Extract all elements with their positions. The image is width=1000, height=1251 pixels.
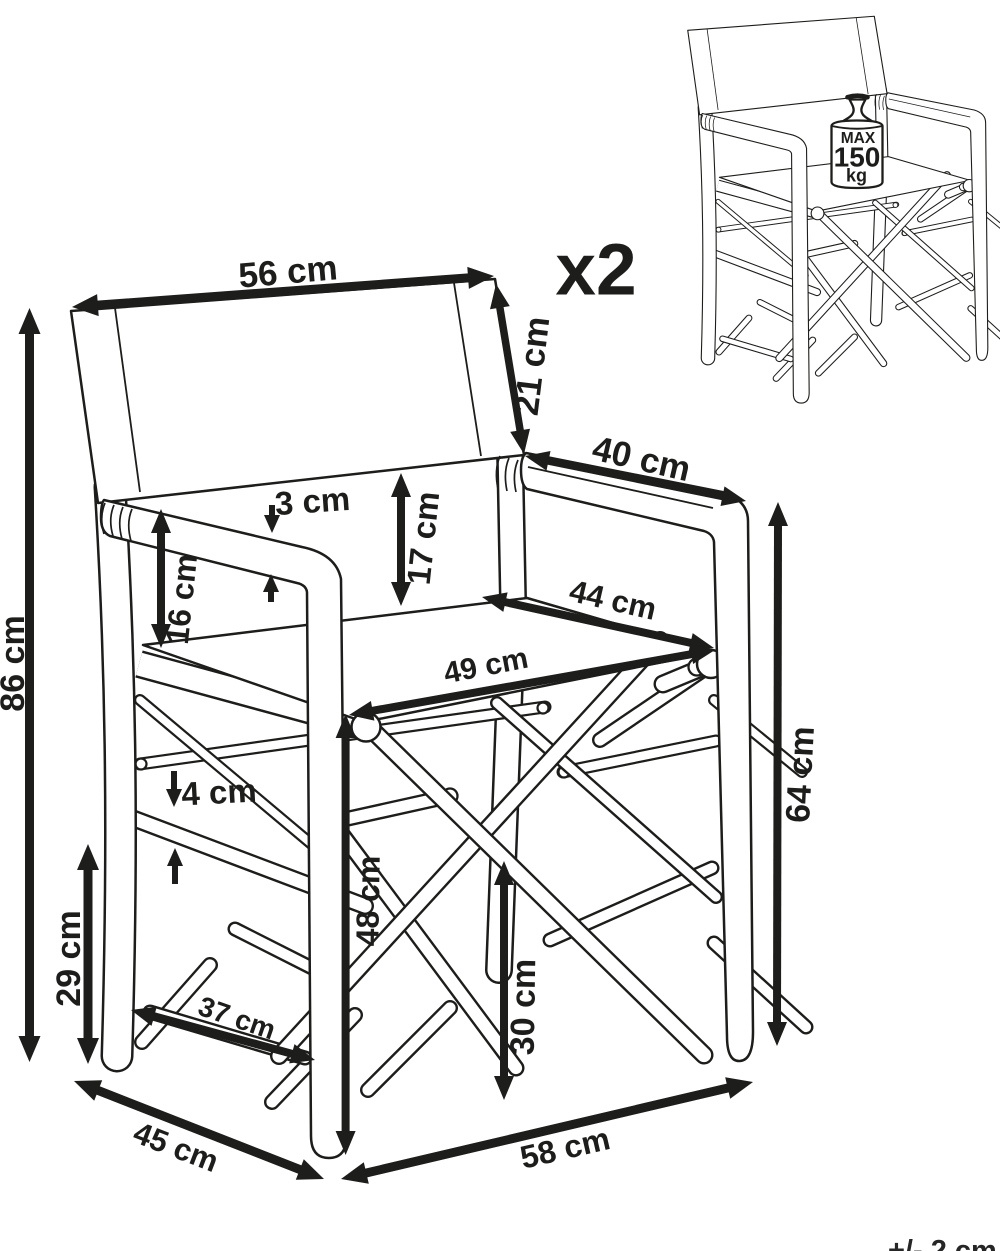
svg-text:48 cm: 48 cm bbox=[349, 855, 387, 946]
svg-text:64 cm: 64 cm bbox=[779, 725, 822, 823]
svg-text:3 cm: 3 cm bbox=[274, 480, 352, 522]
svg-text:4 cm: 4 cm bbox=[180, 772, 257, 813]
svg-text:x2: x2 bbox=[555, 230, 636, 311]
svg-text:kg: kg bbox=[846, 166, 867, 186]
svg-text:86 cm: 86 cm bbox=[0, 615, 32, 711]
svg-text:30 cm: 30 cm bbox=[504, 958, 544, 1055]
svg-text:29 cm: 29 cm bbox=[50, 910, 88, 1006]
svg-text:+/- 2 cm: +/- 2 cm bbox=[888, 1235, 997, 1251]
